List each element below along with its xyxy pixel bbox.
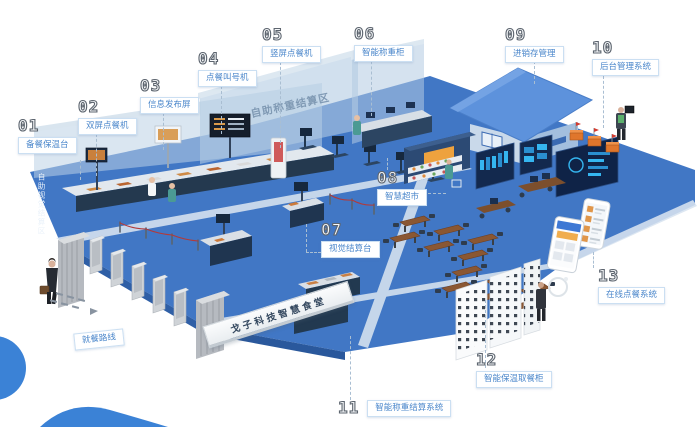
callout-07-label: 视觉结算台 — [321, 241, 380, 258]
callout-13: 13 在线点餐系统 — [598, 268, 665, 304]
callout-10-label: 后台管理系统 — [592, 59, 659, 76]
connector-03 — [163, 113, 164, 150]
connector-13 — [593, 252, 594, 268]
callout-07: 07 视觉结算台 — [321, 222, 380, 258]
callout-13-number: 13 — [598, 268, 619, 284]
connector-11 — [350, 336, 351, 400]
callout-06: 06 智能称重柜 — [354, 26, 413, 62]
callout-01-number: 01 — [18, 118, 39, 134]
visual-zone-pillar-label: 自助视觉结算区 — [36, 173, 47, 236]
callout-04: 04 点餐叫号机 — [198, 51, 257, 87]
callout-12-label: 智能保温取餐柜 — [476, 371, 552, 388]
callout-02-label: 双屏点餐机 — [78, 118, 137, 135]
walking-businessman — [40, 258, 58, 304]
callout-05-number: 05 — [262, 27, 283, 43]
callout-08-number: 08 — [377, 170, 398, 186]
callout-03-number: 03 — [140, 78, 161, 94]
connector-06 — [371, 56, 372, 116]
connector-04 — [221, 86, 222, 134]
callout-10: 10 后台管理系统 — [592, 40, 659, 76]
callout-09-label: 进销存管理 — [505, 46, 564, 63]
callout-10-number: 10 — [592, 40, 613, 56]
decor-circle-icon — [549, 278, 567, 296]
callout-03: 03 信息发布屏 — [140, 78, 199, 114]
callout-01: 01 备餐保温台 — [18, 118, 77, 154]
callout-12-number: 12 — [476, 352, 497, 368]
callout-07-number: 07 — [321, 222, 342, 238]
callout-02: 02 双屏点餐机 — [78, 99, 137, 135]
callout-08: 08 智慧超市 — [377, 170, 427, 206]
connector-01 — [80, 160, 81, 180]
callout-12: 12 智能保温取餐柜 — [476, 352, 552, 388]
callout-08-label: 智慧超市 — [377, 189, 427, 206]
callout-04-number: 04 — [198, 51, 219, 67]
route-arrowhead-icon — [90, 308, 98, 315]
callout-09-number: 09 — [505, 27, 526, 43]
callout-11-label: 智能称重结算系统 — [367, 400, 451, 417]
callout-11: 11 智能称重结算系统 — [338, 400, 451, 417]
smart-canteen-infographic: 自助视觉结算区 自助称重结算区 戈子科技智慧食堂 就餐路线 01 备餐保温台 0… — [0, 0, 700, 427]
callout-06-label: 智能称重柜 — [354, 45, 413, 62]
callout-05: 05 竖屏点餐机 — [262, 27, 321, 63]
connector-07-h — [306, 252, 321, 253]
callout-02-number: 02 — [78, 99, 99, 115]
callout-11-number: 11 — [338, 400, 359, 416]
menu-call-board — [210, 114, 250, 137]
connector-08-h — [428, 193, 446, 194]
operator-figure — [616, 106, 634, 140]
callout-06-number: 06 — [354, 26, 375, 42]
connector-09 — [534, 61, 535, 84]
callout-05-label: 竖屏点餐机 — [262, 46, 321, 63]
decor-blobs — [0, 336, 168, 427]
callout-04-label: 点餐叫号机 — [198, 70, 257, 87]
connector-07-v — [306, 224, 307, 252]
callout-01-label: 备餐保温台 — [18, 137, 77, 154]
connector-10 — [603, 76, 604, 128]
connector-05 — [280, 62, 281, 148]
connector-02 — [96, 134, 97, 176]
callout-09: 09 进销存管理 — [505, 27, 564, 63]
callout-03-label: 信息发布屏 — [140, 97, 199, 114]
callout-13-label: 在线点餐系统 — [598, 287, 665, 304]
